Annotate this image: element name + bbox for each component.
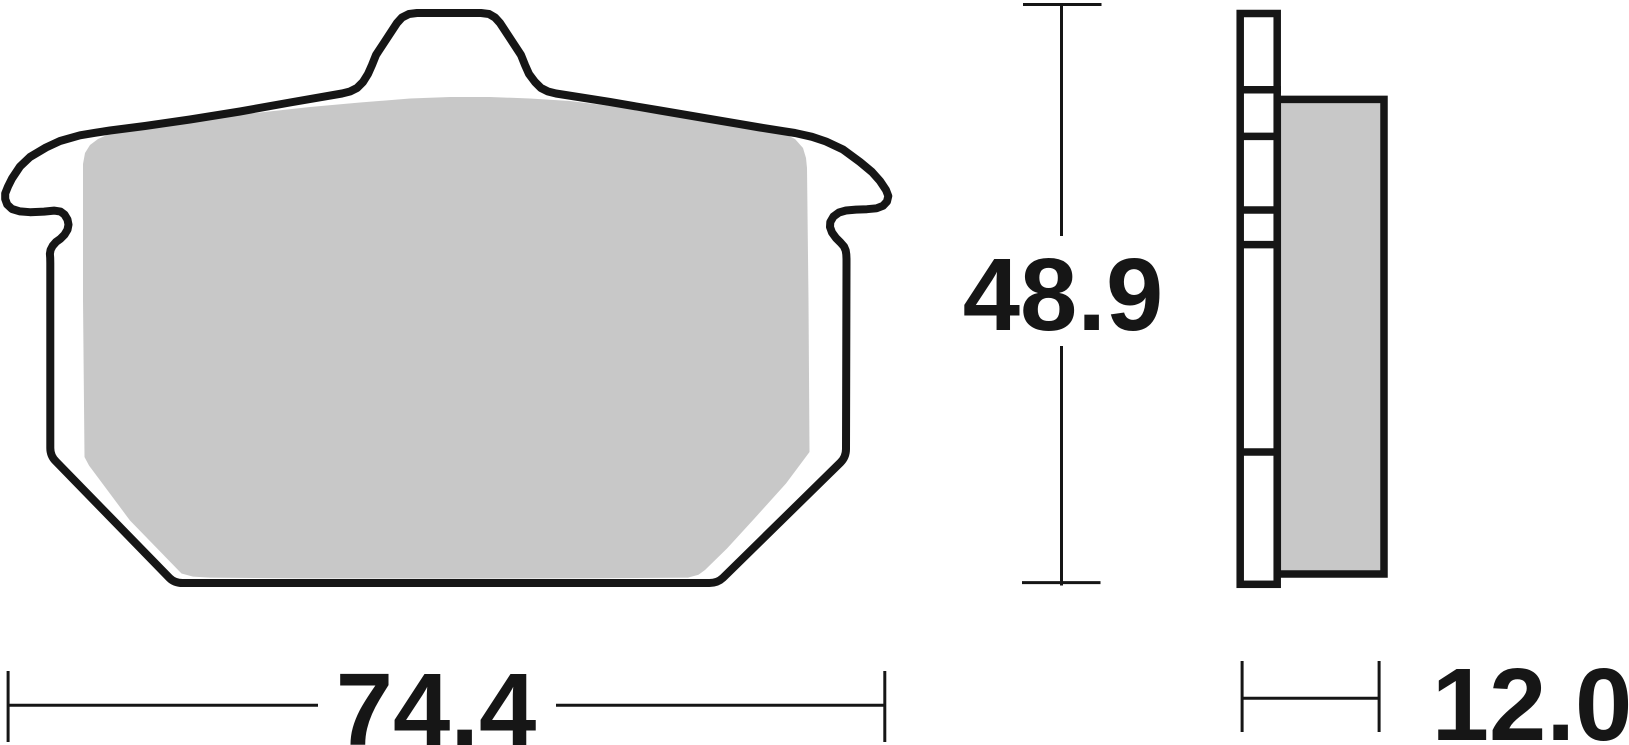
svg-text:12.0: 12.0 <box>1432 647 1629 745</box>
svg-text:48.9: 48.9 <box>963 237 1163 352</box>
svg-text:74.4: 74.4 <box>336 652 536 745</box>
